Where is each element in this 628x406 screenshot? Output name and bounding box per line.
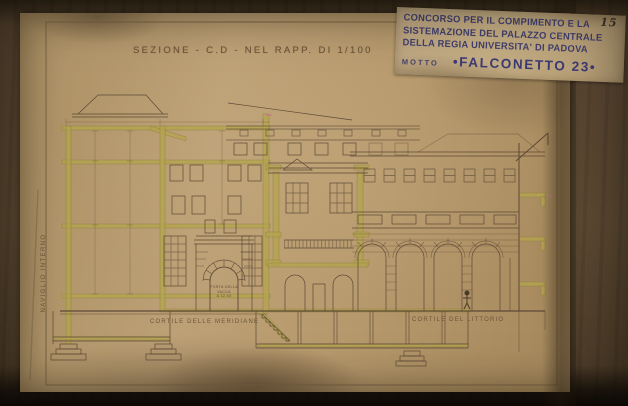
motto-value: •FALCONETTO 23• <box>453 54 597 74</box>
motto-label: MOTTO <box>402 57 439 67</box>
scale-figure <box>463 291 471 309</box>
pink-marks <box>266 115 552 196</box>
handwritten-number: 15 <box>600 16 618 30</box>
label-porta-della-vacca: PORTA DELLA VACCA A 12.43 <box>204 285 244 299</box>
label-cortile-delle-meridiane: CORTILE DELLE MERIDIANE <box>150 319 259 325</box>
portal-label-line3: A 12.43 <box>204 294 244 299</box>
highlighted-structure <box>53 114 545 347</box>
drawing-title: SEZIONE - C.D - NEL RAPP. DI 1/100 <box>133 45 373 56</box>
competition-label-card: CONCORSO PER IL COMPIMENTO E LA SISTEMAZ… <box>394 7 625 83</box>
label-naviglio-interno: NAVIGLIO INTERNO <box>41 233 47 313</box>
label-cortile-del-littorio: CORTILE DEL LITTORIO <box>412 317 504 323</box>
photo-of-architectural-drawing: SEZIONE - C.D - NEL RAPP. DI 1/100 CORTI… <box>0 0 628 406</box>
